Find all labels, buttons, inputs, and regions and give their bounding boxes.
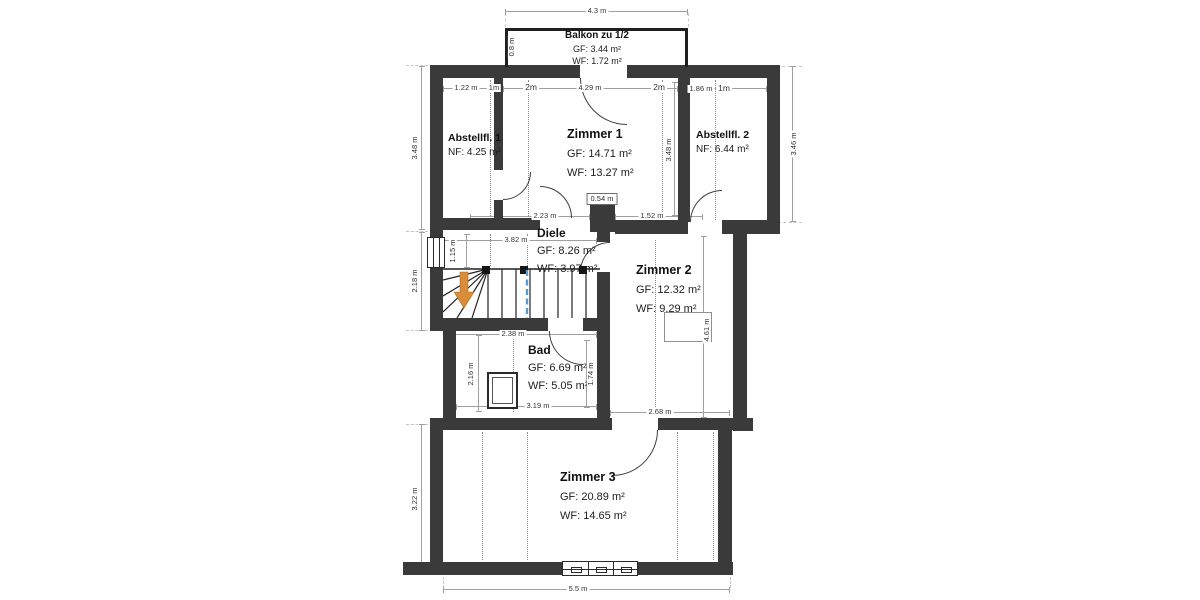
wall [722, 220, 780, 234]
extension-line [688, 13, 689, 27]
room-area-gf: GF: 12.32 m² [636, 281, 701, 300]
dim-label-abst2-w2: 1m [716, 84, 732, 93]
room-label-abstellfl2: Abstellfl. 2 NF: 6.44 m² [696, 128, 749, 158]
extension-line [505, 13, 506, 27]
dim-label-bottom-width: 5.5 m [567, 585, 590, 593]
room-area-gf: GF: 8.26 m² [537, 243, 598, 261]
wall [767, 65, 780, 234]
wall [615, 220, 688, 234]
room-name: Zimmer 2 [636, 260, 701, 281]
dimension-line [674, 82, 675, 216]
floor-plan: Balkon zu 1/2 GF: 3.44 m² WF: 1.72 m² Ab… [0, 0, 1200, 600]
dim-label-pillar: 0.54 m [587, 193, 618, 205]
room-label-balkon: Balkon zu 1/2 GF: 3.44 m² WF: 1.72 m² [565, 29, 629, 67]
roof-height-line [713, 432, 714, 560]
room-name: Diele [537, 224, 598, 243]
dimension-line [421, 66, 422, 230]
roof-height-line [528, 80, 529, 216]
wall [733, 418, 753, 431]
room-area-wf: WF: 13.27 m² [567, 164, 634, 183]
dim-label-diele-width: 3.82 m [503, 236, 530, 244]
dim-label-z2-right: 4.61 m [703, 317, 711, 344]
extension-line [730, 577, 731, 588]
dim-label-abst1-w2: 1m [487, 84, 501, 92]
room-area-gf: GF: 20.89 m² [560, 488, 627, 507]
dimension-line [478, 335, 479, 412]
wall [430, 65, 443, 331]
window-pane-line [621, 567, 632, 573]
roof-height-line [662, 80, 663, 216]
room-area-gf: GF: 6.69 m² [528, 360, 589, 378]
wall [430, 418, 443, 575]
dim-label-balcony-depth: 0.8 m [508, 36, 516, 59]
dim-label-left-lower: 3.22 m [411, 486, 419, 513]
dim-label-bad-left: 2.16 m [467, 361, 475, 388]
wall [733, 228, 747, 420]
window-symbol [562, 561, 638, 576]
wall [583, 318, 610, 331]
room-area-wf: WF: 9.29 m² [636, 300, 701, 319]
wall [430, 318, 548, 331]
dim-label-z1-depth: 3.48 m [665, 137, 673, 164]
dim-label-right-upper: 3.46 m [790, 131, 798, 158]
wall [443, 331, 456, 418]
window-pane-line [571, 567, 582, 573]
stairs-down-arrow-icon [454, 272, 474, 308]
dim-label-abst1-w1: 1.22 m [453, 84, 480, 92]
balcony-wall [685, 28, 688, 67]
door-arc-abstellfl1 [503, 172, 531, 200]
dimension-line [470, 216, 590, 217]
wall [627, 65, 780, 78]
room-area-wf: WF: 3.97 m² [537, 261, 598, 279]
dim-label-bad-top: 2.38 m [500, 330, 527, 338]
dimension-line [466, 234, 467, 268]
skylight-inner-frame [492, 377, 513, 404]
room-area-nf: NF: 4.25 m² [448, 146, 501, 161]
room-label-zimmer3: Zimmer 3 GF: 20.89 m² WF: 14.65 m² [560, 467, 627, 526]
room-label-diele: Diele GF: 8.26 m² WF: 3.97 m² [537, 224, 598, 278]
window-symbol [427, 237, 445, 268]
room-area-gf: GF: 3.44 m² [565, 43, 629, 55]
dimension-line [421, 232, 422, 331]
dim-label-bad-right: 1.74 m [587, 361, 595, 388]
roof-height-line [482, 432, 483, 560]
room-label-abstellfl1: Abstellfl. 1 NF: 4.25 m² [448, 131, 501, 161]
dim-label-left-upper: 3.48 m [411, 135, 419, 162]
room-label-zimmer2: Zimmer 2 GF: 12.32 m² WF: 9.29 m² [636, 260, 701, 319]
room-name: Abstellfl. 1 [448, 131, 501, 146]
wall [430, 218, 540, 230]
window-pane-line [596, 567, 607, 573]
skylight-symbol-bad [487, 372, 518, 409]
dimension-line [421, 424, 422, 574]
roof-height-line [527, 432, 528, 560]
dim-label-left-mid: 2.18 m [411, 268, 419, 295]
window-pane-line [439, 238, 440, 267]
wall [597, 232, 610, 242]
door-arc-abstellfl2 [690, 190, 722, 222]
room-name: Zimmer 3 [560, 467, 627, 488]
dim-label-z1-width: 4.29 m [577, 84, 604, 92]
room-label-bad: Bad GF: 6.69 m² WF: 5.05 m² [528, 341, 589, 395]
dim-label-balcony-width: 4.3 m [586, 7, 609, 15]
dim-label-z1-height1: 2m [523, 83, 539, 92]
wall [430, 418, 612, 430]
room-label-zimmer1: Zimmer 1 GF: 14.71 m² WF: 13.27 m² [567, 124, 634, 183]
room-name: Balkon zu 1/2 [565, 29, 629, 43]
room-name: Bad [528, 341, 589, 360]
stair-post [482, 266, 490, 274]
room-area-wf: WF: 1.72 m² [565, 55, 629, 67]
room-area-nf: NF: 6.44 m² [696, 143, 749, 158]
dim-label-z2-bottom: 2.68 m [647, 408, 674, 416]
room-area-wf: WF: 5.05 m² [528, 378, 589, 396]
room-name: Zimmer 1 [567, 124, 634, 145]
wall [718, 418, 732, 575]
dim-label-abst2-w1: 1.86 m [688, 85, 715, 93]
window-pane-line [433, 238, 434, 267]
room-area-wf: WF: 14.65 m² [560, 507, 627, 526]
dim-label-stair-width: 1.15 m [449, 238, 457, 265]
roof-height-line [490, 234, 491, 266]
dim-label-bad-bottom: 3.19 m [525, 402, 552, 410]
dim-label-z1-b2: 1.52 m [639, 212, 666, 220]
wall [494, 200, 503, 218]
room-name: Abstellfl. 2 [696, 128, 749, 143]
room-area-gf: GF: 14.71 m² [567, 145, 634, 164]
dim-label-z1-height2: 2m [651, 83, 667, 92]
roof-height-line [677, 432, 678, 560]
dim-label-z1-b1: 2.23 m [532, 212, 559, 220]
wall [597, 331, 610, 418]
